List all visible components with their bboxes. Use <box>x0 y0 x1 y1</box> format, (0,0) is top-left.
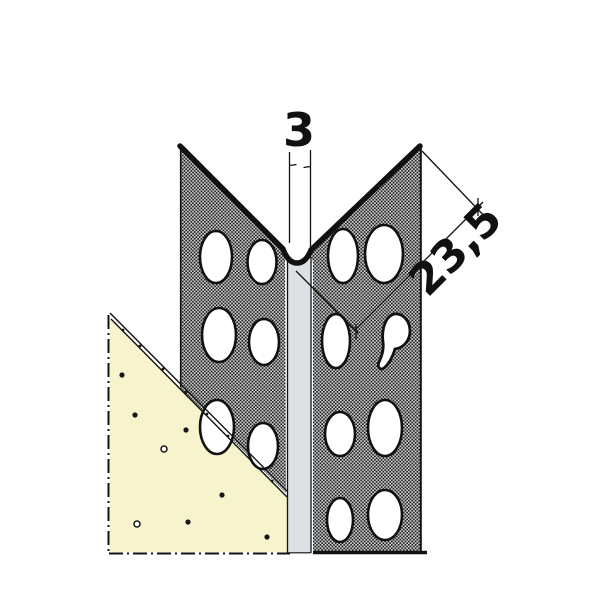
corner-bead-strip <box>287 257 311 553</box>
technical-drawing: 3 23,5 <box>0 0 600 600</box>
bead-strip-fill <box>288 261 311 553</box>
corner-bead-diagram: 3 23,5 <box>0 0 600 600</box>
dimension-3-label: 3 <box>283 103 315 157</box>
